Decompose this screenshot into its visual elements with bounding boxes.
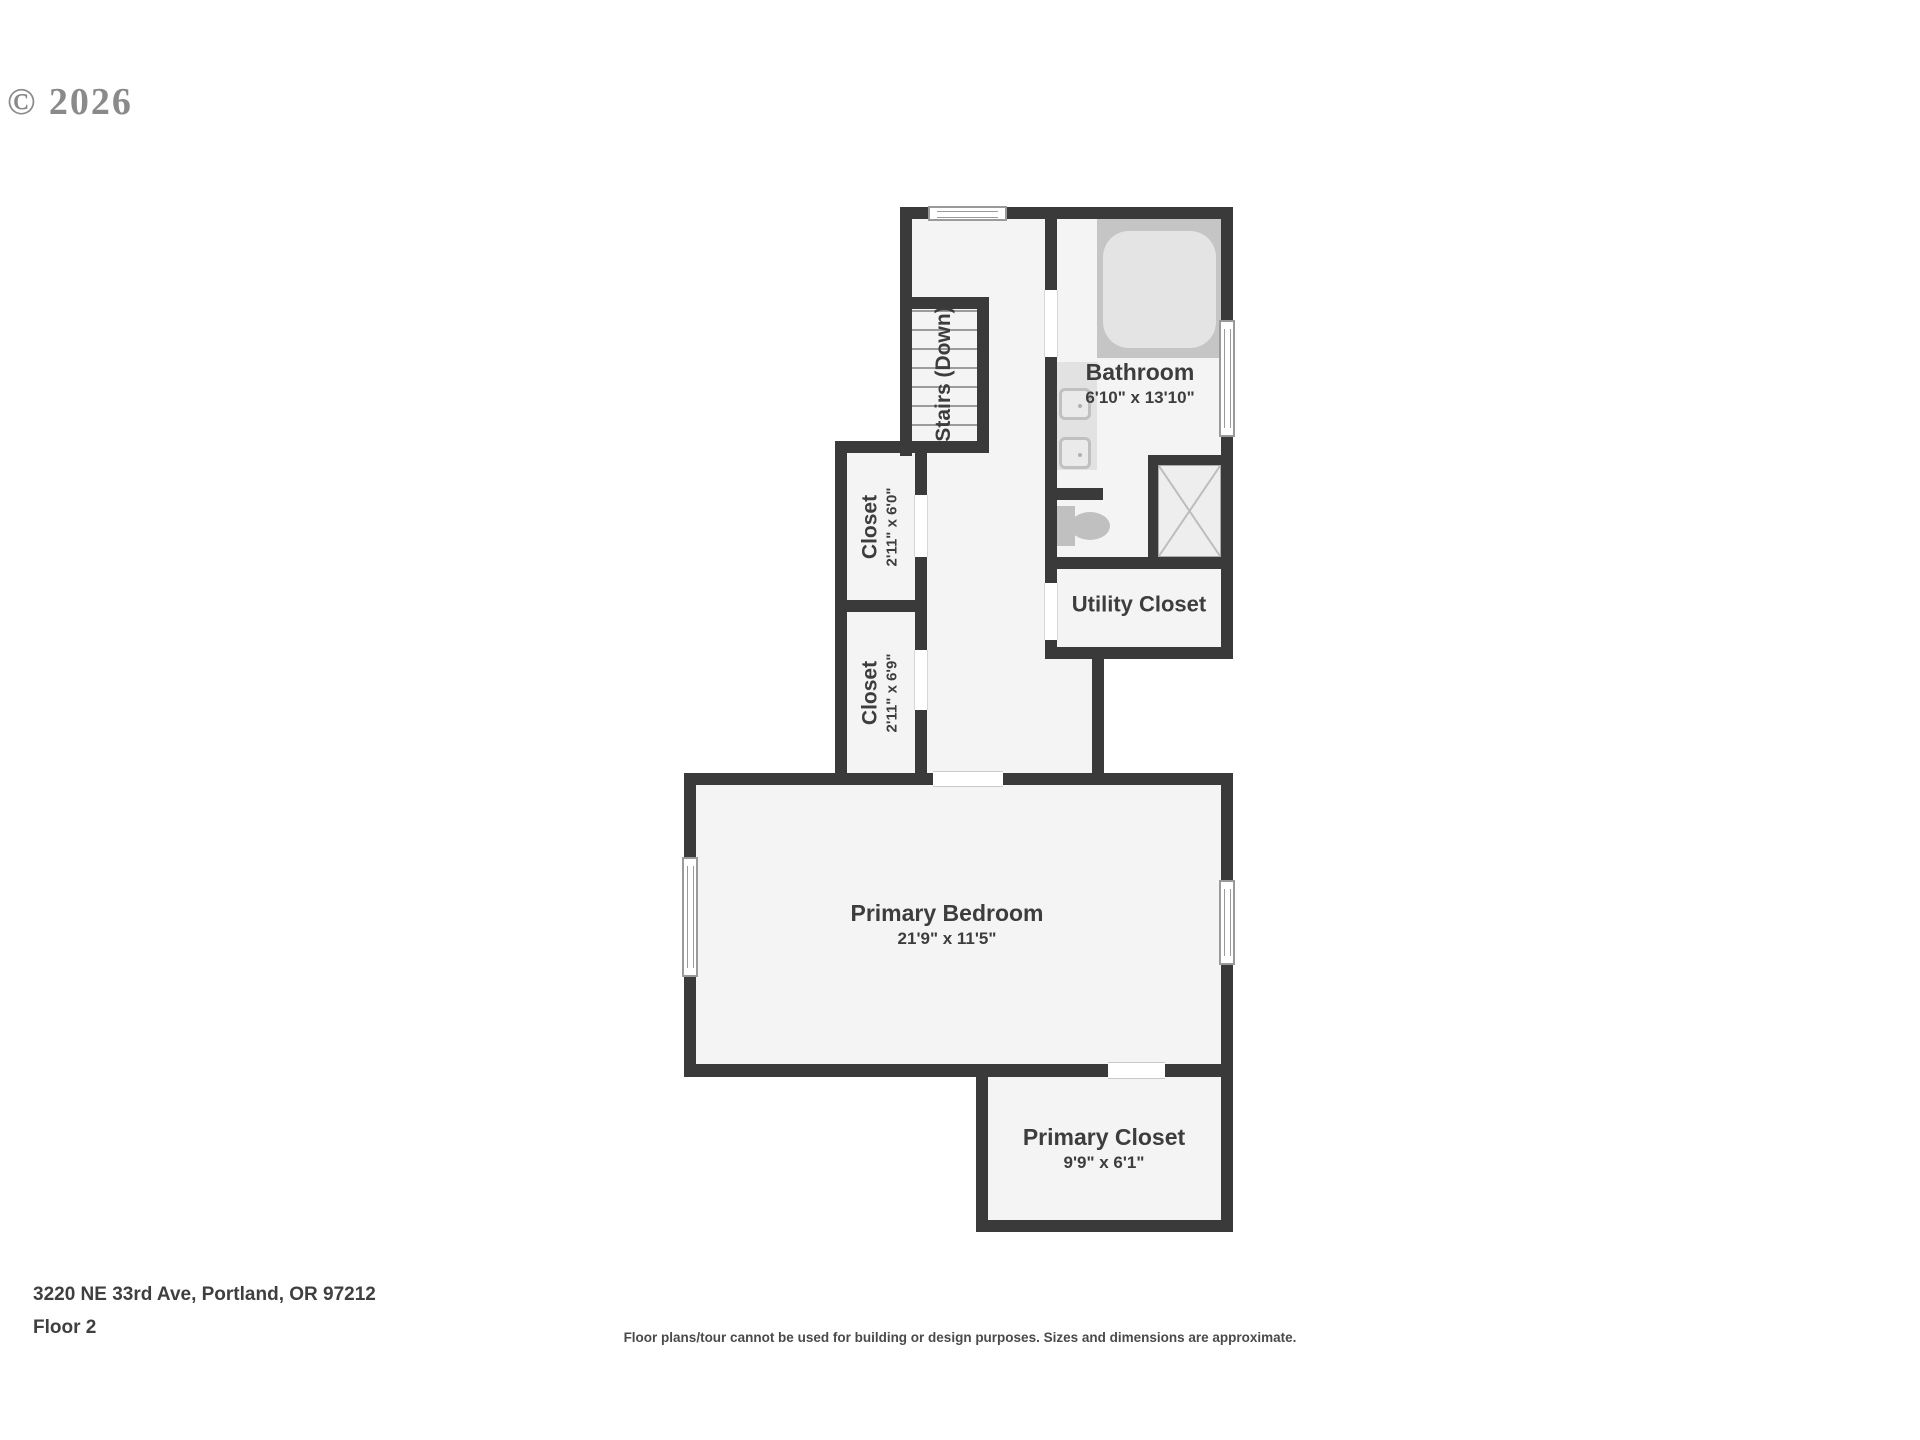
room-name: Primary Closet (1023, 1123, 1185, 1152)
door-opening-bathroom (1044, 290, 1058, 357)
window (682, 857, 698, 977)
window (928, 206, 1007, 221)
door-opening-utility-closet (1044, 583, 1058, 640)
room-label-closet-lower: Closet 2'11" x 6'9" (858, 654, 903, 733)
door-opening-primary-closet (1108, 1062, 1165, 1079)
wall-segment (976, 1064, 988, 1232)
shower-x-glyph (1159, 466, 1220, 556)
room-name: Stairs (Down) (931, 306, 957, 441)
shower-wall (1148, 455, 1158, 557)
room-label-primary-bedroom: Primary Bedroom 21'9" x 11'5" (850, 899, 1043, 949)
room-dimensions: 9'9" x 6'1" (1023, 1152, 1185, 1173)
wall-segment (835, 441, 847, 785)
door-opening-closet-lower (914, 650, 928, 710)
room-name: Closet (858, 488, 884, 567)
property-address: 3220 NE 33rd Ave, Portland, OR 97212 (33, 1284, 376, 1306)
window-pane (1224, 329, 1231, 428)
wall-segment (835, 600, 927, 612)
window (1219, 880, 1235, 965)
bathtub-icon (1103, 231, 1216, 348)
wall-segment (900, 207, 912, 456)
room-label-bathroom: Bathroom 6'10" x 13'10" (1085, 358, 1194, 408)
room-label-closet-upper: Closet 2'11" x 6'0" (858, 488, 903, 567)
faucet-dot (1078, 453, 1082, 457)
disclaimer-text: Floor plans/tour cannot be used for buil… (0, 1330, 1920, 1345)
room-label-stairs: Stairs (Down) (931, 306, 957, 441)
room-name: Primary Bedroom (850, 899, 1043, 928)
wall-segment (977, 297, 989, 453)
room-name: Closet (858, 654, 884, 733)
wall-segment (1092, 659, 1104, 785)
copyright-watermark: © 2026 (7, 80, 133, 124)
window (1219, 320, 1235, 437)
faucet-dot (1078, 404, 1082, 408)
wall-segment (1045, 557, 1233, 569)
window-pane (937, 211, 998, 218)
room-label-utility-closet: Utility Closet (1072, 590, 1206, 618)
toilet-icon (1070, 512, 1110, 540)
wall-segment (835, 441, 989, 453)
wall-segment (1045, 488, 1103, 500)
shower-wall (1148, 455, 1221, 465)
room-dimensions: 21'9" x 11'5" (850, 928, 1043, 949)
window-pane (687, 866, 694, 968)
door-opening-closet-upper (914, 495, 928, 557)
wall-segment (915, 441, 927, 785)
wall-segment (1045, 647, 1233, 659)
sink-icon (1059, 437, 1091, 469)
room-label-primary-closet: Primary Closet 9'9" x 6'1" (1023, 1123, 1185, 1173)
window-pane (1224, 889, 1231, 956)
door-opening-bedroom (933, 771, 1003, 787)
wall-segment (1221, 773, 1233, 1232)
wall-segment (976, 1220, 1233, 1232)
room-name: Bathroom (1085, 358, 1194, 387)
room-dimensions: 2'11" x 6'0" (884, 488, 903, 567)
shower-icon (1158, 465, 1221, 557)
floor-plan-page: © 2026 (0, 0, 1920, 1440)
room-dimensions: 2'11" x 6'9" (884, 654, 903, 733)
hall-floor (927, 659, 1092, 773)
hall-floor (927, 453, 1045, 659)
room-name: Utility Closet (1072, 590, 1206, 618)
room-dimensions: 6'10" x 13'10" (1085, 387, 1194, 408)
